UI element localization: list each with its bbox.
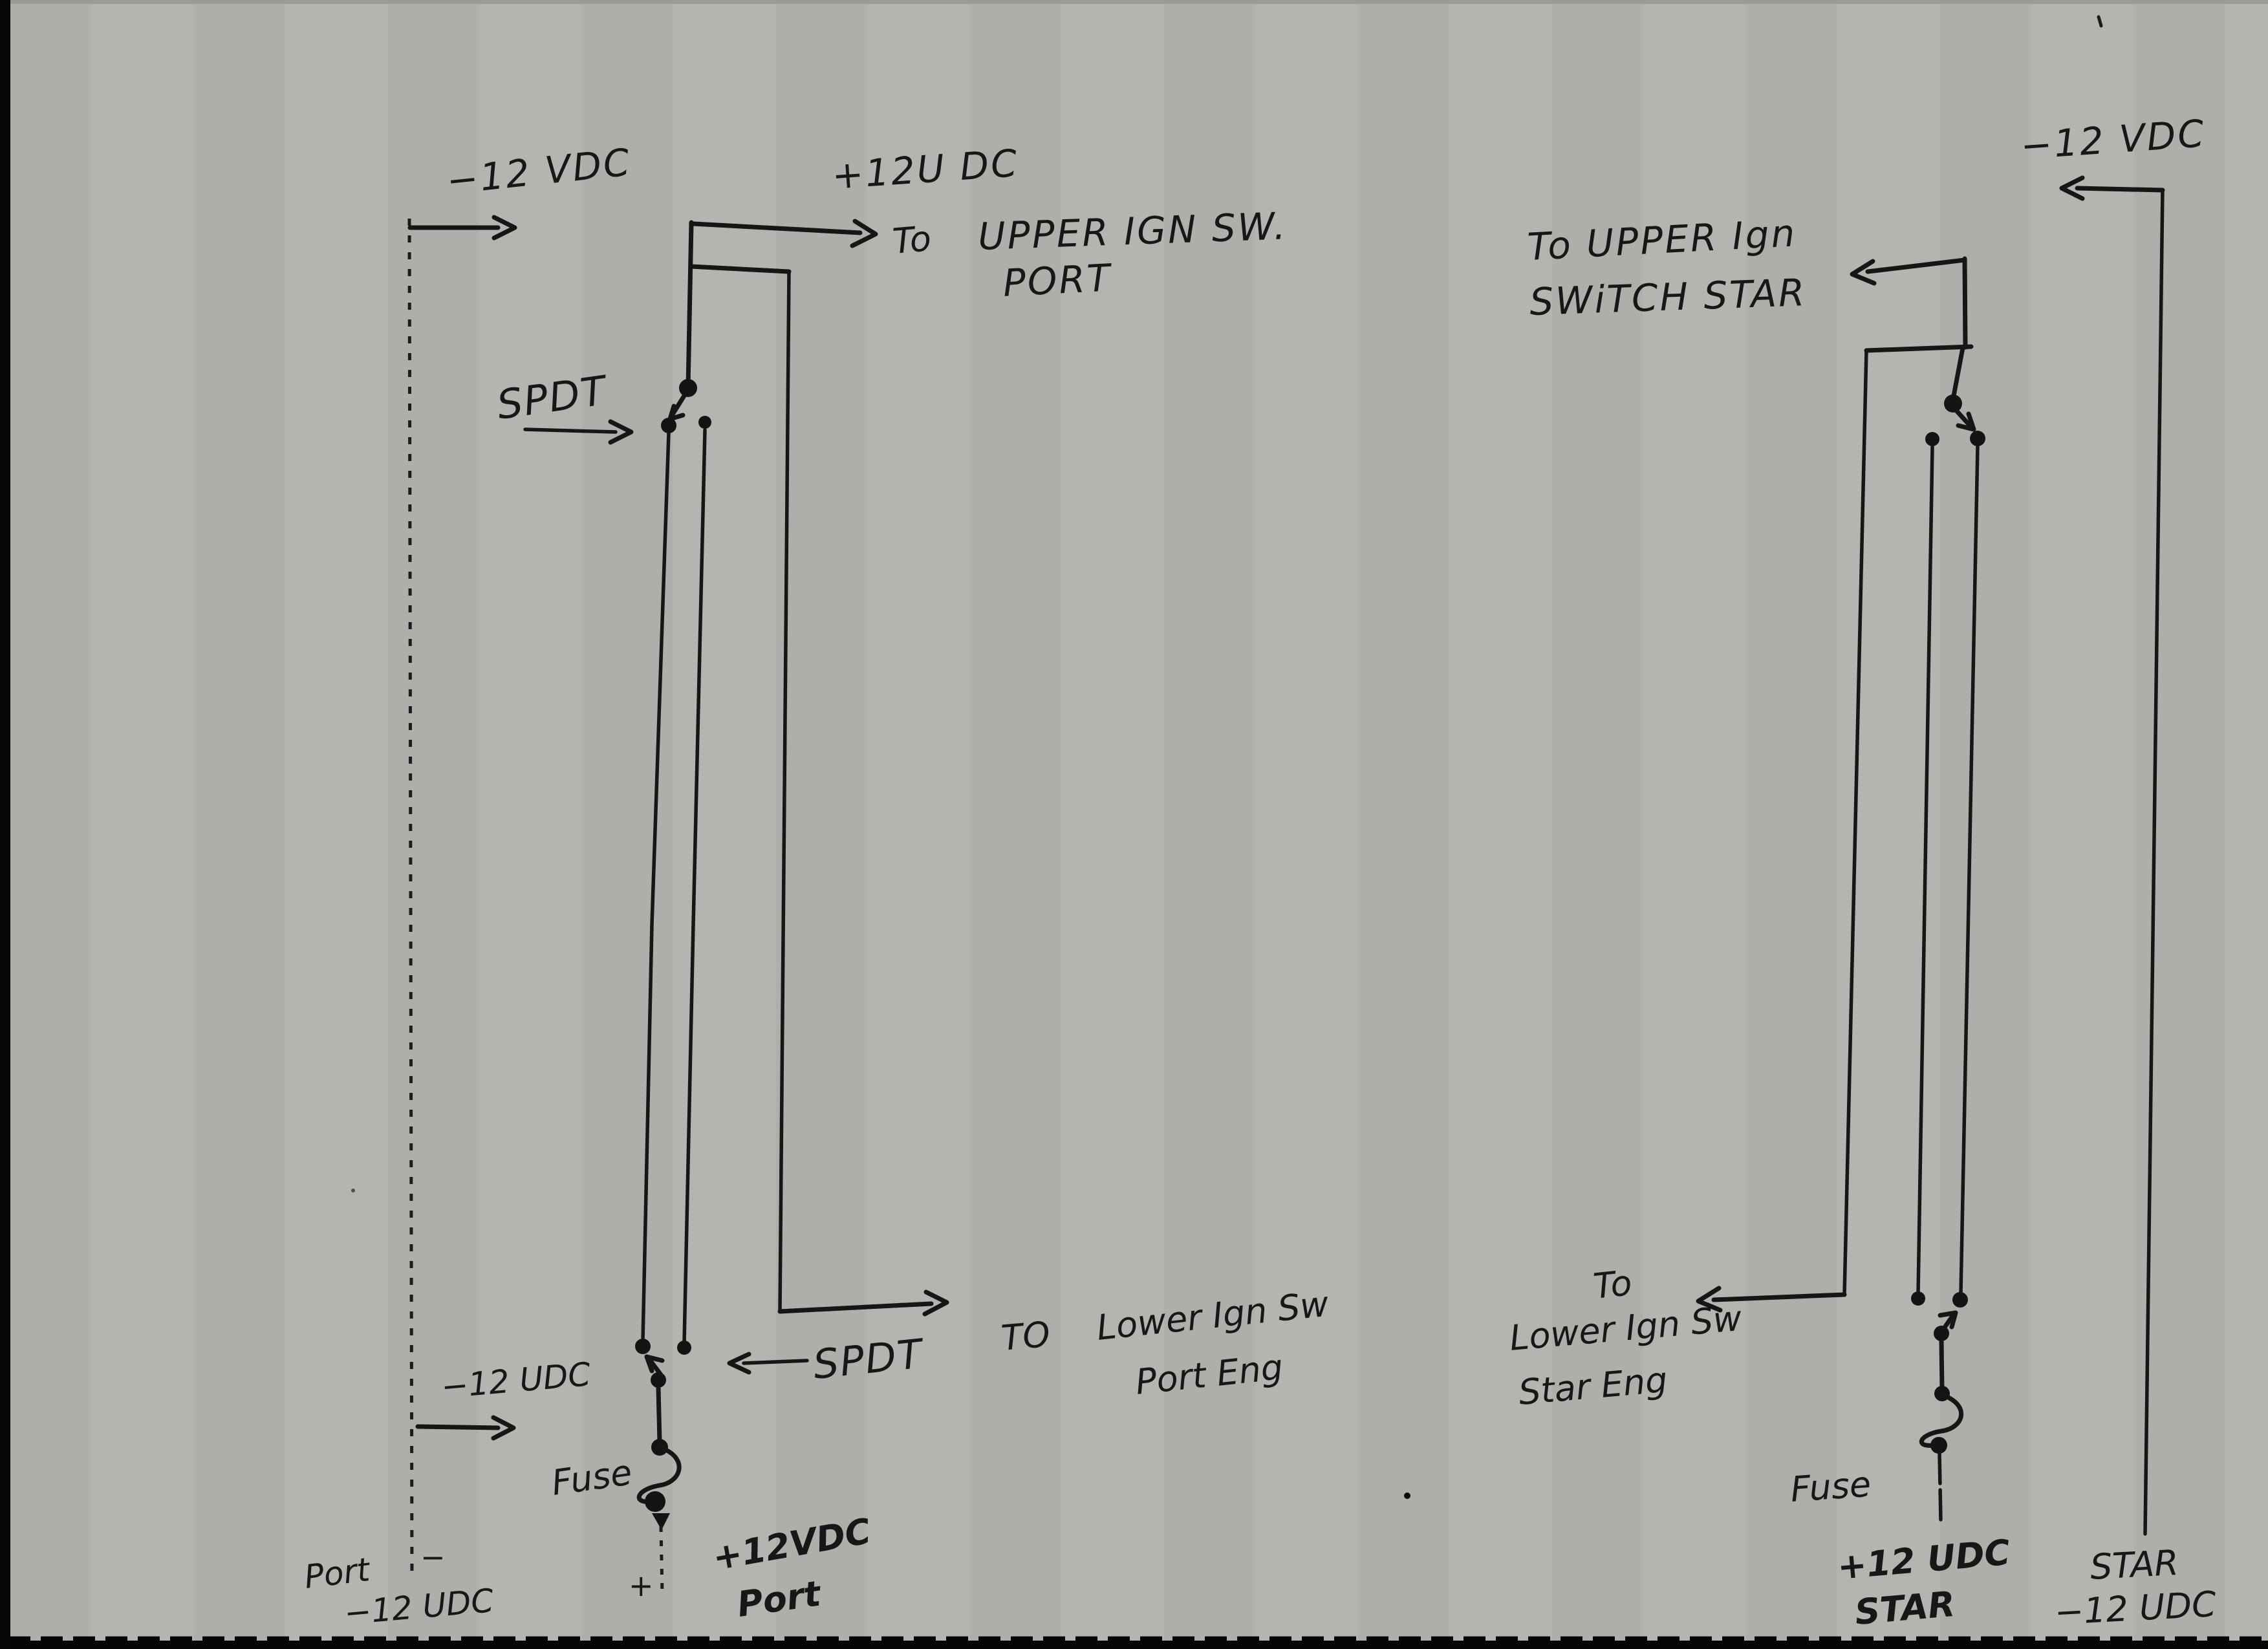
junction-dot	[635, 1339, 651, 1354]
junction-dot	[645, 1491, 665, 1512]
arrow-port-to-lower	[780, 1304, 931, 1311]
port-branch-top-wire	[691, 266, 789, 272]
label-port-plus12-sub: Port	[735, 1573, 825, 1625]
scan-left-edge	[0, 0, 10, 1649]
arrow-spdt-lower-pointer	[744, 1361, 807, 1363]
label-star-to-lower-line1: Lower Ign Sw	[1508, 1298, 1744, 1359]
junction-dot	[1930, 1437, 1947, 1454]
star-throw-wire-right	[1961, 446, 1978, 1293]
port-lower-spdt-switch	[635, 1339, 691, 1388]
wiring-diagram-canvas: −12 VDC −12 UDC Port − −12 UDC +12U DC T…	[0, 0, 2268, 1649]
junction-dot	[1925, 432, 1939, 446]
label-star-neg12-top: −12 VDC	[2019, 111, 2207, 168]
label-star-to-upper-line2: SWiTCH STAR	[1529, 270, 1807, 324]
label-star-plus12-line1: +12 UDC	[1836, 1532, 2012, 1588]
arrow-star-to-upper	[1868, 260, 1965, 272]
junction-dot	[698, 416, 711, 429]
star-fuse-tail-wire	[1939, 1454, 1941, 1521]
label-star-to-lower-line2: Star Eng	[1517, 1359, 1669, 1413]
arrow-port-neg-mid	[418, 1427, 498, 1428]
label-star-plus12-line2: STAR	[1853, 1584, 1957, 1633]
label-port-spdt-upper: SPDT	[494, 367, 611, 429]
label-star-bus-line1: STAR	[2089, 1542, 2179, 1588]
label-port-to-lower-prefix: TO	[1000, 1314, 1052, 1359]
junction-dot	[1911, 1291, 1925, 1306]
port-lower-branch-wire	[780, 272, 789, 1311]
junction-dot	[1944, 394, 1962, 413]
arrow-spdt-upper-pointer	[525, 429, 616, 432]
star-circuit: To UPPER Ign SWiTCH STAR To Lower Ign Sw…	[1508, 111, 2218, 1633]
speck-center-bottom	[1404, 1493, 1410, 1499]
star-fuse-lead-wire	[1941, 1341, 1942, 1389]
label-port-minus-sign: −	[420, 1540, 446, 1575]
junction-dot	[1952, 1292, 1968, 1308]
label-port-to-upper-sub: PORT	[1002, 255, 1114, 305]
speck-left	[351, 1189, 355, 1192]
label-star-fuse: Fuse	[1789, 1463, 1873, 1510]
speck-top-right	[2099, 17, 2101, 26]
star-upper-spdt-switch	[1925, 394, 1985, 446]
label-port-neg12-mid: −12 UDC	[440, 1355, 592, 1406]
junction-dot	[1970, 431, 1985, 446]
star-throw-wire-left	[1918, 447, 1932, 1293]
star-switch-lead-wire	[1954, 348, 1963, 396]
label-port-fuse: Fuse	[549, 1452, 634, 1503]
label-port-to-lower-line1: Lower Ign Sw	[1095, 1284, 1331, 1348]
port-throw-wire-left	[643, 433, 669, 1341]
label-port-plus12-top: +12U DC	[830, 141, 1020, 198]
label-port-to-upper-main: UPPER IGN SW.	[977, 204, 1288, 259]
port-fuse-lead-wire	[658, 1388, 660, 1442]
port-neg-bus-wire	[409, 219, 412, 1578]
scan-bottom-band	[8, 1641, 2268, 1649]
scanned-wiring-diagram-page: −12 VDC −12 UDC Port − −12 UDC +12U DC T…	[0, 0, 2268, 1649]
label-port-to-upper-prefix: To	[891, 218, 933, 262]
label-port-neg12-top: −12 VDC	[444, 140, 633, 203]
label-star-to-lower-prefix: To	[1592, 1262, 1634, 1307]
junction-dot	[661, 418, 676, 433]
label-port-plus-sign: +	[629, 1568, 654, 1603]
star-lower-spdt-switch	[1911, 1291, 1968, 1341]
label-port-to-lower-line2: Port Eng	[1134, 1346, 1285, 1403]
arrow-port-to-upper	[693, 224, 860, 233]
label-port-bottom: Port	[302, 1551, 373, 1596]
port-throw-wire-right	[684, 430, 705, 1342]
port-main-feed-wire	[688, 222, 691, 387]
label-port-neg12-bottom: −12 UDC	[343, 1582, 495, 1632]
star-lower-branch-wire	[1844, 350, 1866, 1295]
label-star-bus-line2: −12 UDC	[2053, 1584, 2217, 1633]
scan-top-edge	[0, 0, 2268, 4]
star-main-feed-wire	[1965, 259, 1965, 347]
port-circuit: −12 VDC −12 UDC Port − −12 UDC +12U DC T…	[302, 140, 1331, 1632]
label-port-spdt-lower: SPDT	[811, 1330, 927, 1388]
arrow-star-neg-top	[2077, 188, 2163, 190]
junction-dot	[679, 379, 697, 397]
port-upper-spdt-switch	[661, 379, 711, 433]
port-plus-feed-wire	[661, 1526, 662, 1593]
label-star-to-upper-line1: To UPPER Ign	[1526, 211, 1798, 269]
star-neg-bus-wire	[2145, 190, 2163, 1534]
star-branch-top-wire	[1866, 347, 1971, 350]
label-port-plus12: +12VDC	[709, 1511, 874, 1579]
junction-dot	[677, 1341, 691, 1355]
